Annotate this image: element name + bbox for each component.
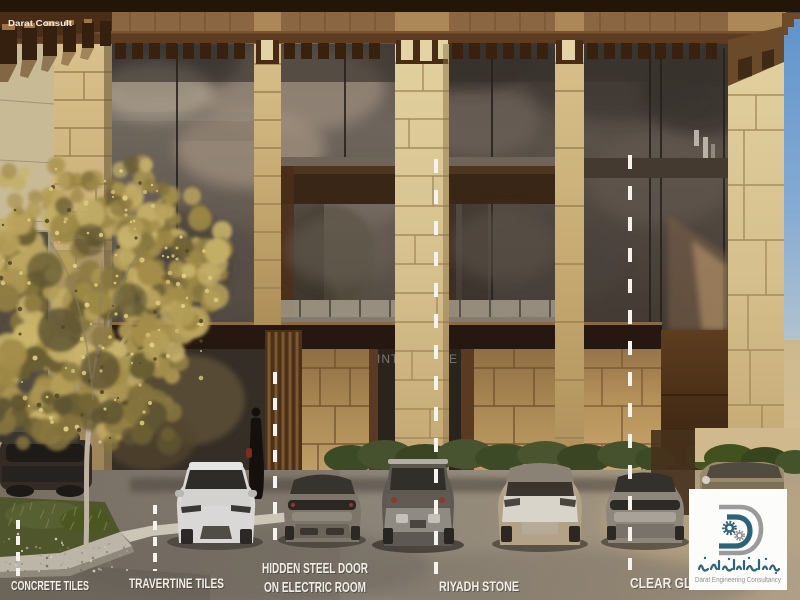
svg-text:Darat Consult: Darat Consult (8, 19, 72, 28)
svg-text:ON ELECTRIC ROOM: ON ELECTRIC ROOM (264, 580, 366, 596)
svg-text:RIYADH STONE: RIYADH STONE (439, 579, 519, 594)
svg-text:HIDDEN STEEL DOOR: HIDDEN STEEL DOOR (262, 561, 368, 577)
svg-text:E: E (449, 352, 457, 366)
svg-text:Darat Engineering Consultancy: Darat Engineering Consultancy (695, 577, 781, 584)
svg-text:TRAVERTINE TILES: TRAVERTINE TILES (129, 576, 224, 591)
svg-text:CONCRETE TILES: CONCRETE TILES (11, 578, 89, 593)
